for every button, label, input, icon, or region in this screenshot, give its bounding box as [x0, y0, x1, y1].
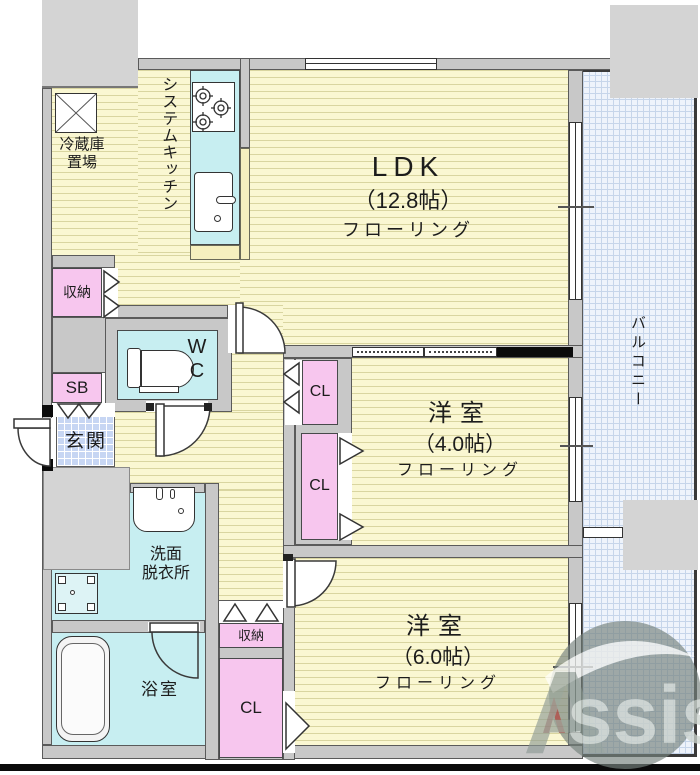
- ldk-door-arc: [239, 307, 285, 353]
- room6-door-arc: [291, 561, 336, 606]
- washroom-line1: 洗面: [130, 545, 202, 564]
- fridge-line1: 冷蔵庫: [48, 136, 116, 154]
- room6-label: 洋室 （6.0帖） フローリング: [338, 613, 538, 693]
- room4-size: （4.0帖）: [360, 432, 560, 457]
- room6-door-stop: [283, 554, 293, 561]
- entrance-door-arc: [18, 428, 50, 466]
- kitchen-label: システムキッチン: [158, 76, 177, 212]
- room6-flooring: フローリング: [338, 674, 538, 693]
- wc-door-leaf: [156, 404, 164, 456]
- room6-door-leaf: [287, 559, 295, 607]
- room6-name: 洋室: [338, 613, 538, 642]
- cl-mid-label: CL: [301, 476, 338, 495]
- bath-door-leaf: [150, 623, 198, 632]
- watermark-rest: ssist: [567, 670, 700, 761]
- sb-label: SB: [52, 378, 102, 398]
- wc-line1: W: [186, 335, 208, 359]
- bathroom-label: 浴室: [130, 680, 190, 700]
- entrance-door-leaf: [14, 419, 50, 428]
- fridge-x-mark: [56, 94, 96, 132]
- shuno-bottom-label: 収納: [219, 628, 283, 644]
- wc-door-stop-left: [146, 403, 154, 411]
- wc-line2: C: [186, 359, 208, 383]
- stove-burners: [193, 86, 231, 132]
- balcony-label: バルコニー: [628, 315, 646, 410]
- wc-label: W C: [186, 335, 208, 383]
- wc-door-stop-right: [204, 403, 212, 411]
- washroom-line2: 脱衣所: [130, 564, 202, 583]
- cl-bottom-label: CL: [219, 698, 283, 718]
- ldk-door-leaf: [236, 303, 243, 353]
- room4-label: 洋室 （4.0帖） フローリング: [360, 400, 560, 480]
- fridge-label: 冷蔵庫 置場: [48, 136, 116, 172]
- floor-plan: A ssist LDK （12.8帖） フローリング 洋室 （4.0帖） フロー…: [0, 0, 700, 775]
- ldk-label: LDK （12.8帖） フローリング: [300, 150, 516, 242]
- washroom-label: 洗面 脱衣所: [130, 545, 202, 583]
- room6-size: （6.0帖）: [338, 645, 538, 670]
- ldk-name: LDK: [300, 150, 516, 184]
- ldk-flooring: フローリング: [300, 220, 516, 242]
- room4-name: 洋室: [360, 400, 560, 429]
- bath-door-arc: [152, 632, 198, 678]
- genkan-label: 玄関: [58, 431, 114, 454]
- fridge-line2: 置場: [48, 154, 116, 172]
- cl-top-label: CL: [302, 382, 338, 401]
- ldk-size: （12.8帖）: [300, 188, 516, 214]
- wc-door-arc: [160, 406, 210, 456]
- folding-door-glyphs: [58, 271, 363, 749]
- shuno-top-label: 収納: [52, 284, 102, 301]
- assist-watermark: A ssist: [515, 615, 700, 771]
- room4-flooring: フローリング: [360, 461, 560, 480]
